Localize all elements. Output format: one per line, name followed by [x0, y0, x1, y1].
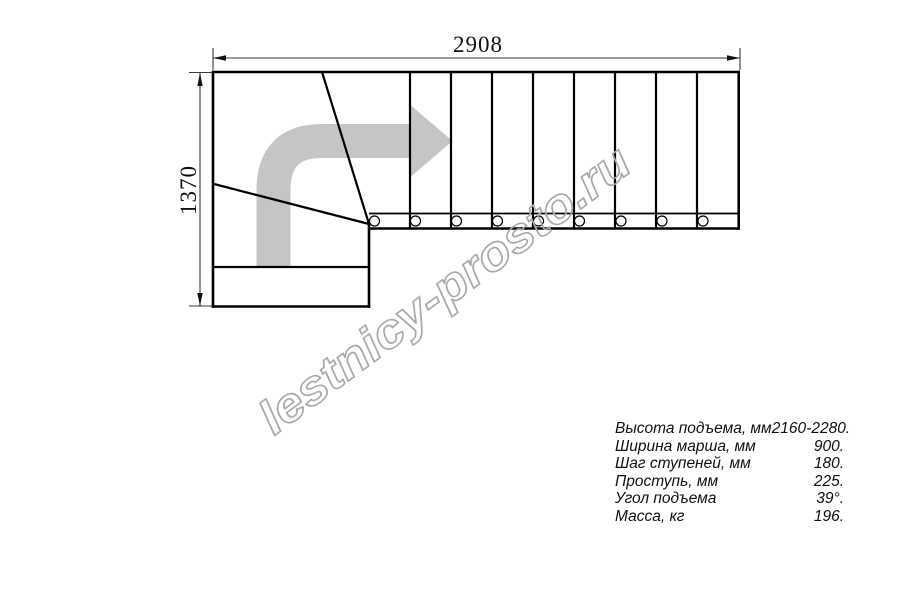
spec-label: Масса, кг — [615, 508, 684, 526]
direction-arrow-head — [411, 106, 453, 177]
spec-value: 196. — [814, 508, 844, 526]
dim-arrow-left — [213, 55, 226, 60]
winder-step-line-2 — [214, 184, 369, 224]
spec-label: Ширина марша, мм — [615, 438, 756, 456]
dimension-height-text: 1370 — [176, 165, 201, 215]
spec-table: Высота подъема, мм 2160-2280. Ширина мар… — [615, 420, 844, 525]
dimension-height: 1370 — [176, 73, 212, 307]
dim-arrow-top — [197, 73, 202, 86]
spec-label: Угол подъема — [615, 490, 716, 508]
spec-value: 39°. — [816, 490, 844, 508]
stair-drawing-page: 2908 1370 lestnicy-prosto.ru Высота подъ… — [0, 0, 900, 600]
spec-label: Проступь, мм — [615, 473, 718, 491]
spec-row-mass: Масса, кг 196. — [615, 508, 844, 526]
spec-label: Шаг ступеней, мм — [615, 455, 751, 473]
spec-value: 2160-2280. — [772, 420, 850, 438]
spec-row-tread: Проступь, мм 225. — [615, 473, 844, 491]
spec-row-width: Ширина марша, мм 900. — [615, 438, 844, 456]
spec-label: Высота подъема, мм — [615, 420, 772, 438]
spec-value: 900. — [814, 438, 844, 456]
dimension-width-text: 2908 — [453, 32, 503, 57]
direction-arrow — [274, 106, 453, 268]
dimension-width: 2908 — [213, 32, 740, 70]
spec-value: 180. — [814, 455, 844, 473]
spec-value: 225. — [814, 473, 844, 491]
spec-row-height: Высота подъема, мм 2160-2280. — [615, 420, 844, 438]
watermark-text: lestnicy-prosto.ru — [249, 136, 641, 445]
spec-row-angle: Угол подъема 39°. — [615, 490, 844, 508]
spec-row-step: Шаг ступеней, мм 180. — [615, 455, 844, 473]
dim-arrow-bottom — [197, 293, 202, 306]
dim-arrow-right — [727, 55, 740, 60]
